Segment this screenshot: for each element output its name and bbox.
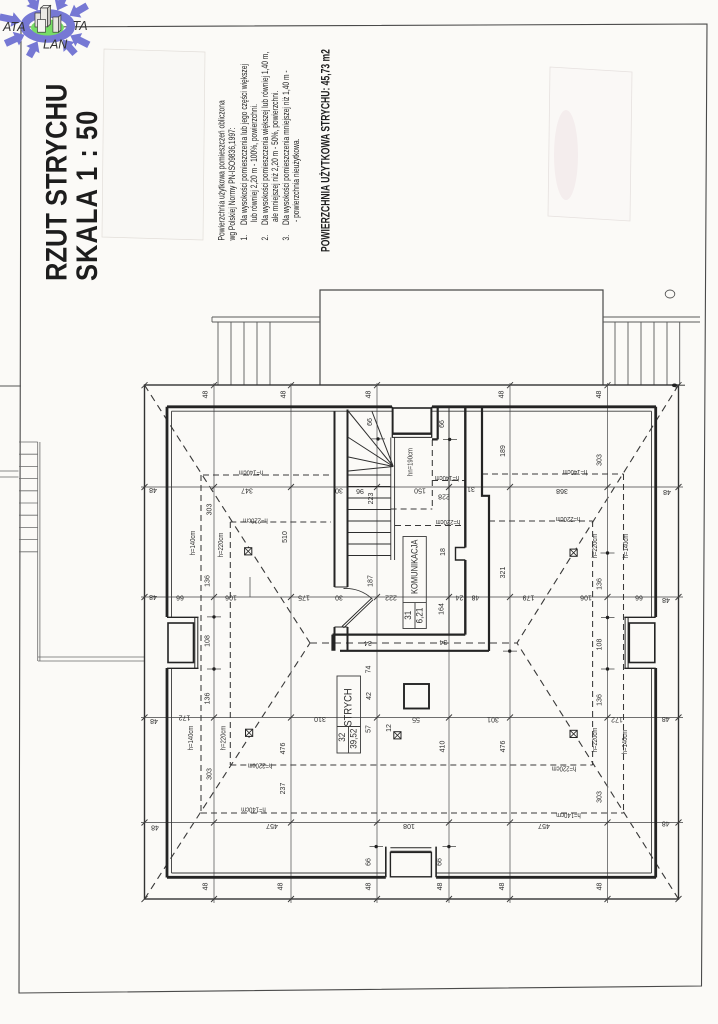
svg-text:h=220cm: h=220cm bbox=[436, 518, 461, 526]
svg-text:42: 42 bbox=[366, 692, 373, 700]
svg-text:48: 48 bbox=[499, 391, 506, 399]
svg-text:106: 106 bbox=[580, 594, 592, 601]
svg-text:39,52: 39,52 bbox=[348, 728, 359, 748]
svg-text:108: 108 bbox=[403, 822, 415, 829]
svg-text:347: 347 bbox=[241, 487, 253, 494]
svg-text:34: 34 bbox=[364, 639, 372, 646]
svg-text:30: 30 bbox=[335, 594, 343, 601]
svg-text:187: 187 bbox=[368, 575, 375, 587]
svg-text:POWIERZCHNIA UŻYTKOWA STRYCHU:: POWIERZCHNIA UŻYTKOWA STRYCHU: 45,73 m2 bbox=[318, 49, 333, 252]
svg-text:h=140cm: h=140cm bbox=[239, 468, 264, 476]
svg-text:150: 150 bbox=[414, 487, 426, 494]
svg-text:136: 136 bbox=[597, 694, 604, 706]
svg-text:h=140cm: h=140cm bbox=[241, 805, 266, 813]
svg-text:48: 48 bbox=[365, 883, 372, 891]
svg-text:1.: 1. bbox=[239, 235, 249, 241]
svg-text:LAN: LAN bbox=[43, 38, 68, 52]
svg-text:30: 30 bbox=[335, 487, 343, 494]
svg-text:303: 303 bbox=[597, 454, 604, 466]
svg-text:66: 66 bbox=[367, 418, 374, 426]
svg-text:172: 172 bbox=[179, 714, 191, 721]
svg-text:Powierzchnia użytkowa pomieszc: Powierzchnia użytkowa pomieszczeń oblicz… bbox=[217, 100, 227, 241]
svg-text:48: 48 bbox=[662, 715, 670, 722]
svg-text:222: 222 bbox=[385, 594, 397, 601]
svg-text:12: 12 bbox=[386, 724, 393, 732]
svg-text:ale mniejszej niż 2,20 m - 50%: ale mniejszej niż 2,20 m - 50%, powierzc… bbox=[270, 91, 280, 222]
svg-text:SKALA 1 : 50: SKALA 1 : 50 bbox=[70, 110, 103, 281]
svg-text:106: 106 bbox=[225, 594, 237, 601]
svg-text:108: 108 bbox=[205, 635, 212, 647]
svg-text:31: 31 bbox=[467, 485, 475, 492]
svg-text:48: 48 bbox=[150, 717, 158, 724]
svg-text:175: 175 bbox=[298, 594, 310, 601]
svg-text:510: 510 bbox=[282, 531, 289, 543]
svg-text:179: 179 bbox=[523, 594, 535, 601]
svg-text:301: 301 bbox=[487, 716, 499, 723]
svg-text:228: 228 bbox=[438, 493, 450, 500]
svg-text:hn=190cm: hn=190cm bbox=[407, 448, 415, 476]
svg-text:48: 48 bbox=[662, 819, 670, 826]
svg-text:6,21: 6,21 bbox=[414, 607, 425, 623]
svg-text:Dla wysokości pomieszczenia wi: Dla wysokości pomieszczenia większej lub… bbox=[260, 52, 270, 225]
svg-text:48: 48 bbox=[278, 883, 285, 891]
svg-text:48: 48 bbox=[151, 824, 159, 831]
svg-text:108: 108 bbox=[597, 639, 604, 651]
svg-text:303: 303 bbox=[207, 768, 214, 780]
svg-text:476: 476 bbox=[500, 741, 507, 753]
svg-text:303: 303 bbox=[207, 504, 214, 516]
svg-text:RZUT STRYCHU: RZUT STRYCHU bbox=[40, 84, 73, 281]
svg-text:310: 310 bbox=[314, 715, 326, 722]
svg-text:wg Polskiej Normy PN-ISO9836,1: wg Polskiej Normy PN-ISO9836,1997: bbox=[227, 127, 237, 241]
svg-text:66: 66 bbox=[439, 420, 446, 428]
svg-text:h=140cm: h=140cm bbox=[435, 474, 460, 482]
svg-text:48: 48 bbox=[662, 596, 670, 603]
svg-text:h=220cm: h=220cm bbox=[552, 764, 577, 772]
svg-text:237: 237 bbox=[280, 783, 287, 795]
svg-text:h=140cm: h=140cm bbox=[622, 730, 630, 755]
svg-text:48: 48 bbox=[437, 883, 444, 891]
svg-text:303: 303 bbox=[597, 791, 604, 803]
svg-text:48: 48 bbox=[366, 391, 373, 399]
svg-text:3.: 3. bbox=[281, 235, 291, 241]
svg-text:57: 57 bbox=[366, 725, 373, 733]
svg-text:66: 66 bbox=[635, 594, 643, 601]
svg-text:96: 96 bbox=[356, 487, 364, 494]
svg-text:ATA: ATA bbox=[2, 20, 25, 34]
svg-text:31: 31 bbox=[402, 610, 413, 619]
svg-text:Dla wysokości pomieszczenia mn: Dla wysokości pomieszczenia mniejszej ni… bbox=[281, 70, 291, 225]
svg-text:164: 164 bbox=[439, 603, 446, 615]
svg-text:48: 48 bbox=[281, 391, 288, 399]
svg-text:136: 136 bbox=[597, 578, 604, 590]
svg-text:74: 74 bbox=[366, 666, 373, 674]
svg-text:h=140cm: h=140cm bbox=[623, 534, 631, 559]
svg-text:2.: 2. bbox=[260, 235, 270, 241]
svg-text:STRYCH: STRYCH bbox=[343, 688, 355, 726]
svg-text:lub równiej 2,20 m - 100%, pow: lub równiej 2,20 m - 100%, powierzchni. bbox=[249, 104, 259, 222]
svg-text:34: 34 bbox=[440, 638, 448, 645]
svg-text:h=220cm: h=220cm bbox=[592, 534, 600, 559]
svg-text:48: 48 bbox=[499, 883, 506, 891]
svg-text:172: 172 bbox=[611, 716, 623, 723]
svg-text:h=140cm: h=140cm bbox=[188, 726, 196, 751]
svg-text:48: 48 bbox=[149, 593, 157, 600]
svg-text:55: 55 bbox=[412, 716, 420, 723]
svg-text:48: 48 bbox=[597, 883, 604, 891]
svg-text:18: 18 bbox=[440, 548, 447, 556]
svg-text:h=140cm: h=140cm bbox=[556, 811, 581, 819]
svg-text:48: 48 bbox=[203, 391, 210, 399]
svg-text:321: 321 bbox=[500, 567, 507, 579]
svg-text:h=220cm: h=220cm bbox=[592, 728, 600, 753]
svg-text:48: 48 bbox=[202, 883, 209, 891]
svg-text:223: 223 bbox=[368, 493, 375, 505]
svg-text:- powierzchnia nieużytkowa.: - powierzchnia nieużytkowa. bbox=[291, 139, 301, 222]
svg-text:136: 136 bbox=[205, 693, 212, 705]
svg-text:h=220cm: h=220cm bbox=[556, 515, 581, 523]
svg-text:136: 136 bbox=[205, 575, 212, 587]
svg-text:368: 368 bbox=[556, 487, 568, 494]
svg-text:48: 48 bbox=[472, 594, 480, 601]
svg-text:h=140cm: h=140cm bbox=[190, 531, 198, 556]
svg-text:410: 410 bbox=[440, 741, 447, 753]
svg-text:KOMUNIKACJA: KOMUNIKACJA bbox=[409, 539, 420, 594]
svg-text:32: 32 bbox=[336, 732, 347, 741]
svg-text:h=220cm: h=220cm bbox=[248, 761, 273, 769]
svg-text:66: 66 bbox=[176, 594, 184, 601]
svg-text:h=220cm: h=220cm bbox=[220, 726, 228, 751]
svg-text:Dla wysokości pomieszczenia lu: Dla wysokości pomieszczenia lub jego czę… bbox=[239, 64, 249, 225]
svg-text:48: 48 bbox=[596, 391, 603, 399]
svg-text:457: 457 bbox=[266, 822, 278, 829]
svg-text:457: 457 bbox=[538, 822, 550, 829]
svg-text:TA: TA bbox=[73, 19, 88, 33]
svg-text:24: 24 bbox=[456, 594, 464, 601]
svg-text:48: 48 bbox=[663, 488, 671, 495]
svg-text:476: 476 bbox=[280, 743, 287, 755]
svg-text:66: 66 bbox=[437, 858, 444, 866]
svg-text:h=220cm: h=220cm bbox=[218, 533, 226, 558]
svg-text:48: 48 bbox=[149, 486, 157, 493]
svg-text:h=140cm: h=140cm bbox=[563, 468, 588, 476]
svg-text:h=220cm: h=220cm bbox=[243, 516, 268, 524]
svg-text:189: 189 bbox=[500, 445, 507, 457]
svg-text:66: 66 bbox=[365, 858, 372, 866]
